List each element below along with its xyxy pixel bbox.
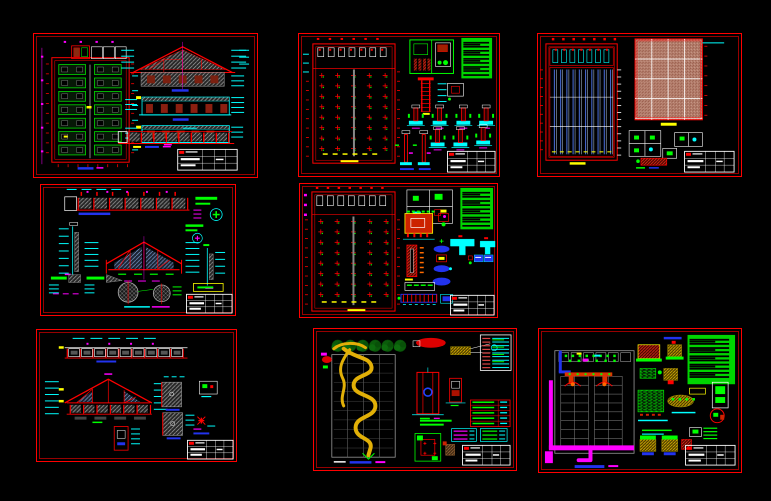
cross-mark bbox=[425, 442, 426, 445]
footing-detail bbox=[478, 114, 480, 118]
cad-run bbox=[604, 70, 605, 155]
column-grid bbox=[371, 243, 372, 244]
cad-rect bbox=[166, 409, 180, 411]
cad-run bbox=[492, 360, 509, 361]
cad-run bbox=[205, 104, 212, 113]
cad-rect bbox=[96, 361, 116, 363]
cad-run bbox=[469, 435, 474, 436]
cad-run bbox=[228, 133, 229, 143]
cad-run bbox=[73, 293, 79, 294]
sheet-roof-plan-beam-details[interactable] bbox=[299, 183, 498, 318]
column-grid bbox=[369, 240, 370, 245]
cad-rect bbox=[341, 160, 359, 162]
cad-run bbox=[46, 133, 49, 134]
cad-rect bbox=[443, 296, 451, 301]
column-grid bbox=[321, 146, 322, 151]
tree-icon bbox=[400, 342, 406, 348]
cad-run bbox=[454, 435, 468, 436]
cad-rect bbox=[577, 353, 582, 355]
cad-run bbox=[397, 285, 400, 286]
cad-run bbox=[668, 39, 669, 120]
cad-circle bbox=[692, 138, 696, 142]
cad-run bbox=[239, 50, 249, 51]
cad-run bbox=[371, 301, 376, 302]
cad-run bbox=[131, 152, 134, 153]
cad-run bbox=[173, 290, 182, 291]
cad-run bbox=[75, 417, 87, 420]
cad-run bbox=[462, 219, 480, 221]
cad-run bbox=[621, 353, 631, 362]
cad-rect bbox=[186, 224, 204, 226]
cad-run bbox=[306, 90, 309, 91]
cad-rect bbox=[350, 461, 372, 463]
cad-rect bbox=[395, 144, 399, 145]
cad-run bbox=[428, 59, 431, 71]
cad-run bbox=[135, 351, 142, 355]
column-grid bbox=[386, 118, 387, 119]
cad-run bbox=[53, 293, 59, 294]
cad-rect bbox=[713, 413, 718, 417]
cad-run bbox=[152, 281, 160, 282]
sheet-2-drawing bbox=[299, 34, 499, 176]
title-block bbox=[689, 460, 701, 462]
cad-rect bbox=[668, 345, 682, 357]
cad-run bbox=[161, 351, 168, 355]
stall bbox=[97, 148, 103, 153]
cad-run bbox=[49, 284, 59, 285]
cad-run bbox=[131, 103, 134, 104]
cad-circle bbox=[602, 382, 606, 386]
cad-rect bbox=[427, 152, 431, 153]
cad-run bbox=[432, 294, 433, 302]
cad-run bbox=[454, 438, 468, 439]
cad-path bbox=[146, 247, 174, 269]
column-grid bbox=[371, 254, 372, 255]
title-block-logo bbox=[686, 153, 691, 156]
title-block bbox=[189, 308, 200, 310]
cad-run bbox=[438, 95, 447, 96]
column-grid bbox=[369, 104, 370, 109]
cad-run bbox=[109, 198, 110, 210]
title-block bbox=[470, 447, 480, 448]
cad-run bbox=[172, 376, 177, 377]
cad-run bbox=[482, 435, 497, 436]
cad-run bbox=[46, 64, 49, 65]
cad-rect bbox=[79, 213, 111, 215]
cad-run bbox=[575, 70, 576, 155]
cad-run bbox=[134, 274, 142, 275]
cad-run bbox=[121, 62, 134, 63]
sheet-building-section[interactable] bbox=[36, 329, 237, 462]
cad-run bbox=[428, 284, 433, 285]
title-block bbox=[216, 159, 224, 160]
footing-detail bbox=[476, 141, 490, 145]
cad-run bbox=[463, 74, 489, 76]
column-grid bbox=[321, 125, 322, 130]
cross-mark bbox=[434, 442, 435, 445]
cad-run bbox=[420, 247, 424, 248]
cad-run bbox=[397, 266, 400, 267]
column-grid bbox=[354, 296, 355, 297]
footing-detail bbox=[458, 130, 462, 143]
cad-rect bbox=[417, 372, 439, 413]
cad-run bbox=[131, 93, 134, 94]
stall bbox=[62, 80, 68, 85]
cad-rect bbox=[664, 368, 678, 380]
cad-run bbox=[690, 376, 730, 378]
footing-detail bbox=[484, 108, 488, 121]
column-grid bbox=[385, 136, 386, 141]
cad-rect bbox=[59, 346, 64, 348]
cad-run bbox=[686, 398, 688, 400]
cad-run bbox=[97, 405, 107, 413]
column-grid bbox=[387, 243, 388, 244]
stall bbox=[97, 67, 103, 72]
stall bbox=[97, 134, 103, 139]
cad-run bbox=[125, 128, 137, 129]
cad-rect bbox=[136, 96, 141, 99]
cad-run bbox=[560, 151, 564, 152]
cad-rect bbox=[203, 244, 209, 246]
cad-run bbox=[420, 294, 421, 302]
cad-rect bbox=[638, 420, 668, 421]
cad-circle bbox=[443, 215, 446, 218]
cad-run bbox=[463, 66, 489, 68]
column-grid bbox=[369, 73, 370, 78]
column-grid bbox=[339, 118, 340, 119]
sheet-roof-framing-plan[interactable] bbox=[537, 33, 742, 177]
sheet-architectural-plan-elevations[interactable] bbox=[33, 33, 258, 178]
cad-run bbox=[360, 49, 362, 51]
cad-rect bbox=[152, 306, 170, 307]
cad-run bbox=[239, 64, 249, 65]
cad-run bbox=[121, 50, 134, 51]
cad-rect bbox=[312, 192, 395, 215]
cad-run bbox=[555, 49, 557, 51]
cad-run bbox=[306, 156, 309, 157]
cad-run bbox=[46, 123, 49, 124]
cad-run bbox=[217, 133, 228, 142]
column-grid bbox=[370, 150, 371, 151]
cad-rect bbox=[468, 256, 472, 260]
cad-run bbox=[427, 211, 430, 213]
cad-run bbox=[59, 265, 69, 266]
cad-run bbox=[46, 152, 49, 153]
cad-run bbox=[130, 343, 132, 345]
cad-run bbox=[123, 405, 124, 414]
cad-rect bbox=[59, 400, 64, 402]
cad-run bbox=[472, 407, 494, 408]
cad-run bbox=[593, 38, 595, 40]
column-grid bbox=[323, 87, 324, 88]
cad-run bbox=[59, 250, 69, 251]
cad-run bbox=[41, 127, 43, 129]
cad-run bbox=[178, 133, 179, 143]
cad-run bbox=[565, 355, 567, 357]
cad-rect bbox=[92, 422, 102, 423]
sheet-foundation-plan[interactable] bbox=[298, 33, 500, 177]
cad-circle bbox=[636, 159, 640, 163]
cad-run bbox=[82, 189, 92, 190]
cad-run bbox=[317, 196, 323, 206]
cad-run bbox=[704, 75, 707, 76]
stall bbox=[62, 121, 68, 126]
cad-rect bbox=[193, 428, 201, 429]
cad-run bbox=[323, 153, 328, 154]
cad-run bbox=[690, 357, 716, 359]
cad-canvas[interactable] bbox=[0, 0, 771, 501]
cad-run bbox=[606, 355, 608, 357]
cad-run bbox=[376, 38, 378, 40]
cad-run bbox=[164, 376, 169, 377]
stall bbox=[62, 148, 68, 153]
cad-rect bbox=[142, 97, 229, 101]
column-grid bbox=[339, 108, 340, 109]
cad-run bbox=[59, 236, 69, 237]
column-grid bbox=[338, 254, 339, 255]
cad-run bbox=[131, 64, 134, 65]
cad-run bbox=[186, 425, 195, 426]
cad-run bbox=[617, 148, 621, 149]
cad-run bbox=[428, 294, 429, 302]
cad-run bbox=[492, 345, 509, 346]
cad-rect bbox=[634, 148, 639, 152]
title-block bbox=[478, 304, 484, 305]
cad-rect bbox=[642, 434, 664, 435]
column-grid bbox=[337, 292, 338, 297]
cad-rect bbox=[74, 48, 80, 57]
column-grid bbox=[386, 282, 387, 287]
cad-rect bbox=[167, 437, 181, 439]
footing-detail bbox=[453, 142, 467, 146]
cad-run bbox=[617, 126, 621, 127]
sheet-drainage-plan[interactable] bbox=[538, 328, 742, 473]
cad-rect bbox=[664, 337, 682, 339]
cad-run bbox=[492, 367, 509, 368]
footing-detail bbox=[459, 105, 467, 108]
cad-run bbox=[407, 284, 412, 285]
cad-rect bbox=[668, 380, 674, 384]
cad-run bbox=[131, 113, 134, 114]
cad-run bbox=[482, 367, 490, 368]
cad-run bbox=[613, 360, 615, 362]
cad-run bbox=[617, 98, 621, 99]
cad-rect bbox=[608, 465, 618, 467]
cad-run bbox=[132, 149, 138, 150]
footing-detail bbox=[436, 105, 444, 108]
cad-run bbox=[651, 39, 652, 120]
cad-run bbox=[49, 288, 59, 289]
cad-run bbox=[560, 70, 561, 155]
cross-mark bbox=[434, 452, 435, 455]
cad-run bbox=[463, 42, 489, 44]
cad-rect bbox=[197, 286, 213, 288]
tree-icon bbox=[369, 344, 376, 351]
column-grid bbox=[387, 285, 388, 286]
cad-run bbox=[156, 198, 157, 210]
cad-rect bbox=[451, 86, 459, 93]
stall bbox=[112, 107, 118, 112]
cad-run bbox=[176, 104, 183, 113]
cad-circle bbox=[649, 147, 653, 151]
cad-run bbox=[617, 70, 621, 71]
cad-run bbox=[131, 123, 134, 124]
cad-run bbox=[381, 187, 383, 189]
cad-run bbox=[70, 405, 71, 414]
footing-detail bbox=[436, 128, 444, 129]
stall bbox=[97, 107, 103, 112]
cad-rect bbox=[423, 113, 430, 115]
cad-rect bbox=[549, 380, 553, 449]
column-grid bbox=[385, 94, 386, 99]
cad-run bbox=[193, 218, 201, 219]
column-grid bbox=[337, 271, 338, 276]
cad-run bbox=[126, 198, 139, 209]
cad-rect bbox=[451, 405, 459, 406]
cad-run bbox=[462, 200, 490, 202]
cad-run bbox=[635, 59, 702, 60]
cad-rect bbox=[484, 255, 493, 262]
cad-run bbox=[579, 355, 581, 357]
cad-run bbox=[108, 338, 120, 339]
column-grid bbox=[369, 83, 370, 88]
cad-run bbox=[597, 49, 599, 51]
stall bbox=[112, 80, 118, 85]
tree-icon bbox=[375, 342, 381, 348]
cad-rect bbox=[545, 451, 553, 463]
cad-run bbox=[186, 248, 200, 249]
cad-rect bbox=[321, 353, 327, 356]
cad-run bbox=[421, 304, 424, 305]
cad-rect bbox=[636, 359, 662, 362]
cad-run bbox=[499, 435, 505, 436]
cad-run bbox=[420, 257, 424, 258]
cad-run bbox=[599, 151, 603, 152]
cad-rect bbox=[417, 435, 423, 440]
cad-run bbox=[397, 71, 400, 72]
cad-rect bbox=[75, 232, 79, 271]
sheet-4-drawing bbox=[41, 185, 235, 315]
cad-run bbox=[581, 70, 582, 155]
column-grid bbox=[323, 129, 324, 130]
cad-run bbox=[131, 83, 134, 84]
cad-run bbox=[540, 149, 543, 150]
column-grid bbox=[370, 76, 371, 77]
cad-run bbox=[370, 48, 376, 57]
stall bbox=[112, 94, 118, 99]
title-block bbox=[455, 153, 465, 154]
column-grid bbox=[371, 233, 372, 234]
cad-run bbox=[438, 101, 447, 102]
cad-run bbox=[658, 414, 661, 416]
cad-run bbox=[608, 373, 610, 375]
cad-rect bbox=[413, 144, 417, 145]
stall bbox=[77, 121, 83, 126]
cad-rect bbox=[193, 432, 209, 434]
cad-run bbox=[540, 105, 543, 106]
cad-run bbox=[397, 248, 400, 249]
stall bbox=[77, 134, 83, 139]
title-block-logo bbox=[179, 151, 184, 154]
cad-run bbox=[462, 192, 490, 194]
column-grid bbox=[322, 296, 323, 297]
cad-run bbox=[85, 260, 99, 261]
cad-ellipse bbox=[416, 338, 446, 348]
cad-run bbox=[692, 398, 694, 400]
column-grid bbox=[369, 229, 370, 234]
sheet-truss-details[interactable] bbox=[40, 184, 236, 316]
cad-rect bbox=[65, 197, 77, 211]
cad-run bbox=[179, 133, 190, 142]
footing-detail bbox=[475, 134, 477, 138]
cad-run bbox=[462, 196, 490, 198]
tree-icon bbox=[387, 342, 393, 348]
column-grid bbox=[369, 261, 370, 266]
cad-rect bbox=[439, 257, 445, 260]
cad-rect bbox=[484, 237, 488, 239]
cad-rect bbox=[124, 306, 150, 307]
cad-run bbox=[432, 211, 435, 213]
footing-detail bbox=[489, 134, 491, 138]
cad-rect bbox=[348, 309, 366, 311]
cad-run bbox=[595, 50, 600, 63]
cad-rect bbox=[642, 452, 654, 455]
cad-run bbox=[121, 56, 134, 57]
cad-run bbox=[397, 219, 400, 220]
cad-rect bbox=[400, 168, 414, 170]
cad-run bbox=[587, 50, 592, 63]
cad-run bbox=[482, 345, 490, 346]
footing-detail bbox=[482, 105, 490, 108]
cad-run bbox=[83, 405, 84, 414]
cad-run bbox=[306, 118, 309, 119]
cad-rect bbox=[638, 345, 660, 359]
cad-run bbox=[305, 304, 308, 305]
cad-run bbox=[351, 301, 356, 302]
cad-run bbox=[397, 100, 400, 101]
cad-run bbox=[397, 257, 400, 258]
cad-run bbox=[482, 431, 497, 432]
cad-rect bbox=[87, 277, 105, 280]
cad-run bbox=[463, 70, 489, 72]
column-grid bbox=[320, 219, 321, 224]
cad-run bbox=[578, 360, 580, 362]
sheet-site-piping-plan[interactable] bbox=[313, 328, 517, 471]
column-grid bbox=[321, 83, 322, 88]
cad-run bbox=[690, 343, 730, 345]
cad-run bbox=[469, 431, 474, 432]
stall bbox=[97, 80, 103, 85]
cad-run bbox=[585, 70, 586, 155]
cad-run bbox=[305, 285, 308, 286]
cad-run bbox=[587, 70, 588, 155]
cad-run bbox=[421, 284, 426, 285]
cad-run bbox=[617, 91, 621, 92]
column-grid bbox=[339, 97, 340, 98]
column-grid bbox=[338, 233, 339, 234]
column-grid bbox=[338, 264, 339, 265]
cad-run bbox=[482, 438, 497, 439]
cad-run bbox=[427, 304, 430, 305]
cad-run bbox=[485, 257, 491, 258]
stall bbox=[97, 94, 103, 99]
cad-run bbox=[690, 339, 730, 341]
cad-run bbox=[369, 196, 375, 206]
cad-run bbox=[572, 355, 574, 357]
cad-run bbox=[703, 431, 717, 432]
cad-run bbox=[186, 260, 200, 261]
cad-run bbox=[329, 38, 331, 40]
